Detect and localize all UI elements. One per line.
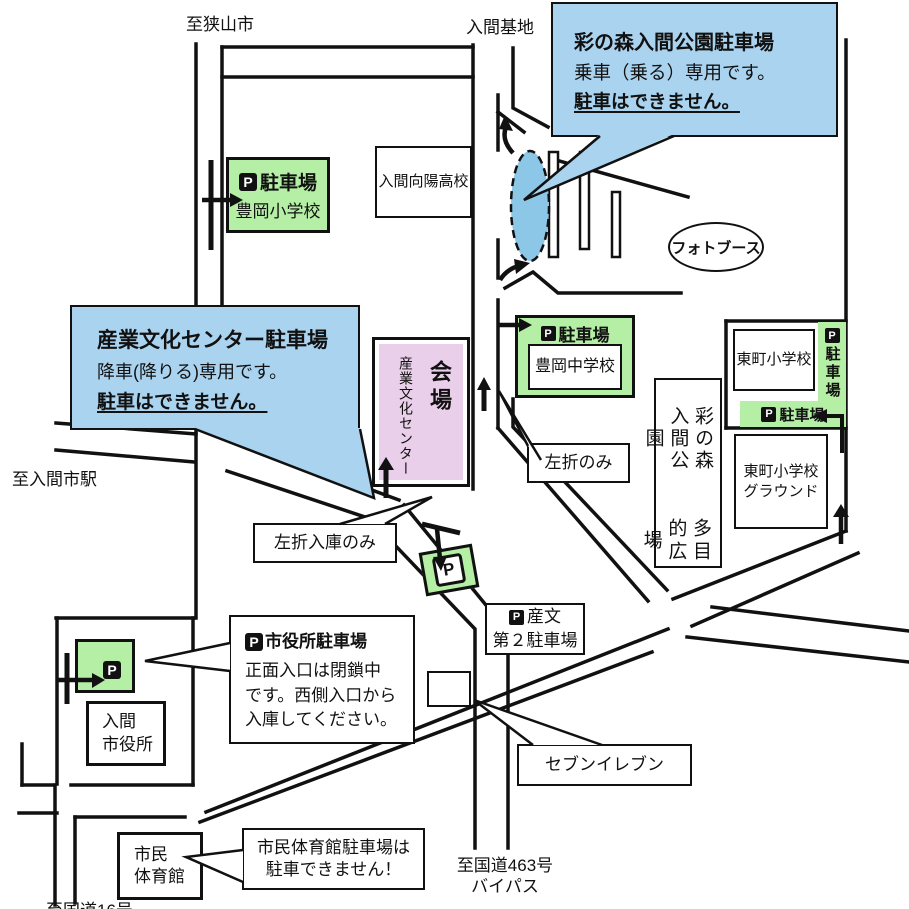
toyooka-es-parking-box: P 駐車場 豊岡小学校	[226, 157, 330, 233]
left-turn-only-label: 左折のみ	[545, 452, 613, 474]
left-turn-entry-only-label: 左折入庫のみ	[274, 532, 376, 554]
to-route463-label: 至国道463号 バイパス	[445, 855, 565, 898]
photo-booth-label: フォトブース	[671, 237, 760, 258]
left-turn-only-box: 左折のみ	[527, 443, 630, 483]
to-sayama-label: 至狭山市	[186, 10, 254, 35]
parking-icon: P	[825, 328, 840, 343]
sainomori-line1: 乗車（乗る）専用です。	[574, 59, 836, 85]
venue-hall-label: 会場	[423, 360, 455, 480]
left-turn-entry-only-box: 左折入庫のみ	[253, 523, 397, 563]
ground-label-l1: 東町小学校	[743, 462, 818, 482]
to-route463-l2: バイパス	[445, 876, 565, 897]
parking-icon: P	[245, 633, 263, 651]
sainomori-title: 彩の森入間公園駐車場	[574, 26, 836, 55]
parking-icon: P	[432, 553, 467, 588]
sangyobunka-line2: 駐車はできません。	[97, 387, 358, 414]
gym-note-label: 市民体育館駐車場は駐車できません！	[257, 837, 410, 881]
cityhall-parking-body: 正面入口は閉鎖中です。西側入口から入庫してください。	[245, 659, 397, 733]
sainomori-line2: 駐車はできません。	[574, 88, 836, 114]
gym-box: 市民 体育館	[117, 832, 203, 900]
gym-label-l2: 体育館	[134, 866, 185, 888]
cityhall-label-l1: 入間	[102, 711, 136, 733]
toyooka-es-label: 豊岡小学校	[236, 197, 321, 222]
sanbun2-parking-box: P 産文 第２駐車場	[485, 603, 585, 655]
parking-label: 駐車場	[559, 321, 610, 346]
koyo-highschool-box: 入間向陽高校	[375, 146, 472, 218]
plaza-label-col1: 彩の森入間公園	[640, 406, 714, 472]
parking-icon: P	[239, 173, 257, 191]
photo-booth-oval: フォトブース	[668, 222, 764, 272]
cityhall-parking-callout: P 市役所駐車場 正面入口は閉鎖中です。西側入口から入庫してください。	[229, 615, 415, 744]
toyooka-jhs-parking-box: P 駐車場 豊岡中学校	[515, 315, 635, 398]
sanbun2-label-l2: 第２駐車場	[493, 630, 578, 652]
cityhall-parking-title: 市役所駐車場	[265, 631, 367, 653]
sanbun2-label-l1: 産文	[527, 606, 561, 628]
higashicho-ground-box: 東町小学校 グラウンド	[734, 434, 828, 529]
venue-name-label: 産業文化センター	[396, 356, 416, 480]
to-route16-label: 至国道16号	[46, 896, 133, 909]
sangyobunka-line1: 降車(降りる)専用です。	[97, 358, 358, 384]
toyooka-jhs-name-box: 豊岡中学校	[528, 344, 622, 390]
parking-strip-label: 駐車場	[779, 404, 824, 425]
pickup-zone-ellipse	[511, 151, 549, 261]
iruma-base-label: 入間基地	[466, 13, 534, 38]
sanbun-lot-box: P	[419, 544, 480, 597]
higashicho-es-label: 東町小学校	[736, 350, 811, 370]
cityhall-label-l2: 市役所	[102, 734, 153, 756]
seven-eleven-label: セブンイレブン	[545, 754, 664, 776]
sainomori-callout: 彩の森入間公園駐車場 乗車（乗る）専用です。 駐車はできません。	[551, 2, 838, 137]
koyo-highschool-label: 入間向陽高校	[378, 172, 468, 192]
cityhall-box: 入間 市役所	[86, 701, 166, 766]
gym-label-l1: 市民	[134, 844, 168, 866]
parking-icon: P	[541, 326, 556, 341]
sangyobunka-callout: 産業文化センター駐車場 降車(降りる)専用です。 駐車はできません。	[70, 305, 360, 430]
access-map: P 駐車場 P 駐車場 入間向陽高校 P 駐車場 豊岡小学校 P 駐車場 豊岡中…	[0, 0, 909, 909]
to-irumashi-station-label: 至入間市駅	[12, 465, 97, 490]
parking-icon: P	[761, 407, 776, 422]
venue-box: 会場 産業文化センター	[372, 337, 470, 487]
parking-icon: P	[509, 610, 524, 625]
ground-label-l2: グラウンド	[743, 482, 818, 502]
parking-row-bars	[549, 152, 620, 257]
sainomori-plaza-box: 彩の森入間公園 多目的広場	[654, 378, 722, 568]
parking-label: 駐車場	[260, 168, 317, 195]
parking-icon: P	[103, 661, 121, 679]
seven-eleven-site-box	[427, 671, 471, 707]
cityhall-lot-box: P	[75, 639, 135, 693]
toyooka-jhs-label: 豊岡中学校	[535, 357, 615, 378]
higashicho-es-box: 東町小学校	[733, 329, 815, 391]
gym-note-callout: 市民体育館駐車場は駐車できません！	[242, 828, 425, 890]
seven-eleven-box: セブンイレブン	[517, 744, 692, 786]
sangyobunka-title: 産業文化センター駐車場	[97, 324, 358, 354]
plaza-label-col2: 多目的広場	[638, 516, 712, 566]
parking-strip-label: 駐車場	[822, 346, 843, 400]
higashicho-parking-strip-horizontal: P 駐車場	[740, 401, 846, 427]
to-route463-l1: 至国道463号	[445, 855, 565, 876]
